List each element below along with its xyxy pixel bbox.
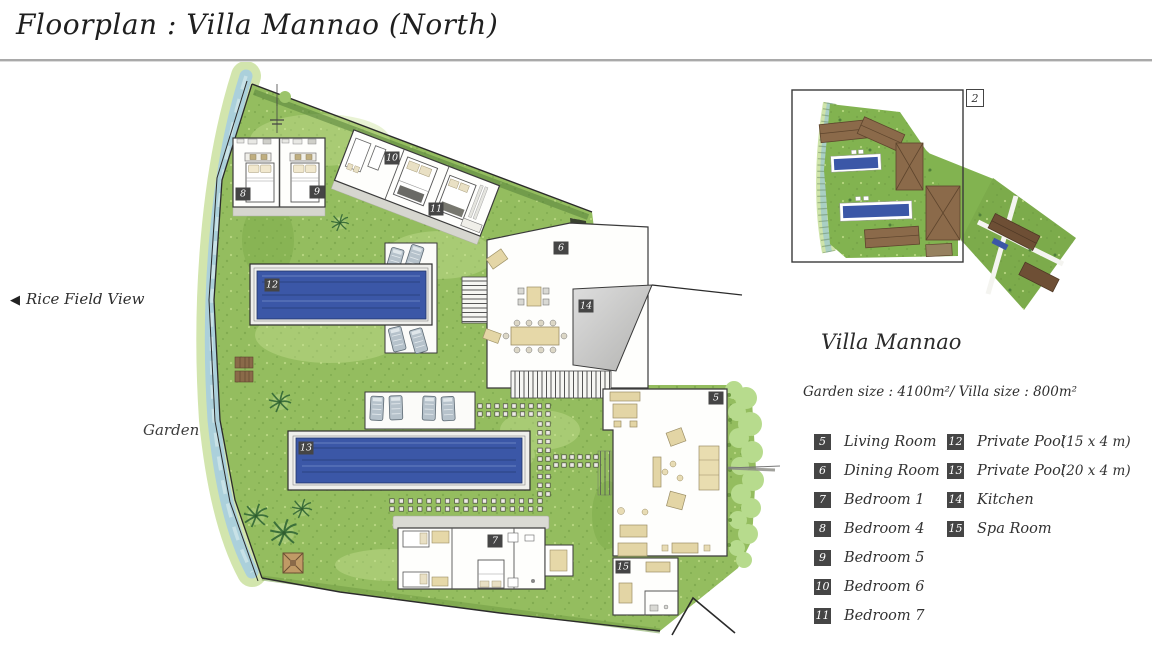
legend-marker: 8 [814, 521, 831, 537]
plan-marker-10: 10 [385, 152, 400, 165]
legend-item-8: 8Bedroom 4 [814, 514, 940, 543]
legend-label: Dining Room [844, 463, 940, 479]
plan-marker-15: 15 [616, 561, 631, 574]
pergola [283, 553, 303, 573]
left-arrow-icon: ◀ [10, 293, 20, 308]
plan-marker-6: 6 [554, 242, 569, 255]
plan-marker-11: 11 [429, 203, 444, 216]
overview-map [792, 90, 1076, 310]
legend-column-1: 5Living Room6Dining Room7Bedroom 18Bedro… [814, 427, 940, 630]
legend-item-10: 10Bedroom 6 [814, 572, 940, 601]
legend-label: Bedroom 6 [844, 579, 925, 595]
legend-label: Bedroom 5 [844, 550, 925, 566]
legend-item-9: 9Bedroom 5 [814, 543, 940, 572]
legend-label: Bedroom 1 [844, 492, 925, 508]
legend-label: Bedroom 7 [844, 608, 925, 624]
villa-name: Villa Mannao [821, 330, 961, 354]
rice-field-view-text: Rice Field View [26, 290, 144, 308]
legend-label: Spa Room [977, 521, 1061, 537]
kitchen-area [573, 285, 742, 371]
shrub [279, 91, 291, 103]
legend-item-12: 12Private Pool(15 x 4 m) [947, 427, 1131, 456]
legend-detail: (15 x 4 m) [1061, 434, 1131, 450]
plan-marker-14: 14 [579, 300, 594, 313]
plan-marker-13: 13 [299, 442, 314, 455]
legend-item-13: 13Private Pool(20 x 4 m) [947, 456, 1131, 485]
legend-label: Private Pool [977, 463, 1061, 479]
title-separator [0, 59, 1152, 62]
legend-marker: 10 [814, 579, 831, 595]
rice-field-view-label: ◀Rice Field View [10, 290, 144, 308]
legend-item-5: 5Living Room [814, 427, 940, 456]
legend-label: Private Pool [977, 434, 1061, 450]
legend-item-7: 7Bedroom 1 [814, 485, 940, 514]
legend-detail: (20 x 4 m) [1061, 463, 1131, 479]
legend-item-14: 14Kitchen [947, 485, 1131, 514]
legend-marker: 7 [814, 492, 831, 508]
legend-item-11: 11Bedroom 7 [814, 601, 940, 630]
legend-marker: 15 [947, 521, 964, 537]
legend-marker: 14 [947, 492, 964, 508]
legend-label: Kitchen [977, 492, 1061, 508]
overview-ref-marker: 2 [966, 89, 984, 107]
bedroom-4-5-building [233, 138, 325, 216]
legend-marker: 11 [814, 608, 831, 624]
size-line: Garden size : 4100m²/ Villa size : 800m² [803, 384, 1077, 400]
legend-marker: 13 [947, 463, 964, 479]
legend-label: Living Room [844, 434, 936, 450]
garden-label: Garden [143, 421, 199, 439]
floorplan-page: Floorplan : Villa Mannao (North) ◀Rice F… [0, 0, 1152, 648]
legend-column-2: 12Private Pool(15 x 4 m)13Private Pool(2… [947, 427, 1131, 543]
legend-marker: 12 [947, 434, 964, 450]
legend-label: Bedroom 4 [844, 521, 925, 537]
legend-item-6: 6Dining Room [814, 456, 940, 485]
plan-marker-5: 5 [709, 392, 724, 405]
living-room-building [603, 389, 727, 556]
legend-item-15: 15Spa Room [947, 514, 1131, 543]
plan-marker-8: 8 [236, 188, 251, 201]
legend-marker: 6 [814, 463, 831, 479]
plan-marker-9: 9 [310, 186, 325, 199]
plan-marker-7: 7 [488, 535, 503, 548]
plan-marker-12: 12 [265, 279, 280, 292]
legend-marker: 5 [814, 434, 831, 450]
legend-marker: 9 [814, 550, 831, 566]
page-title: Floorplan : Villa Mannao (North) [16, 8, 498, 41]
